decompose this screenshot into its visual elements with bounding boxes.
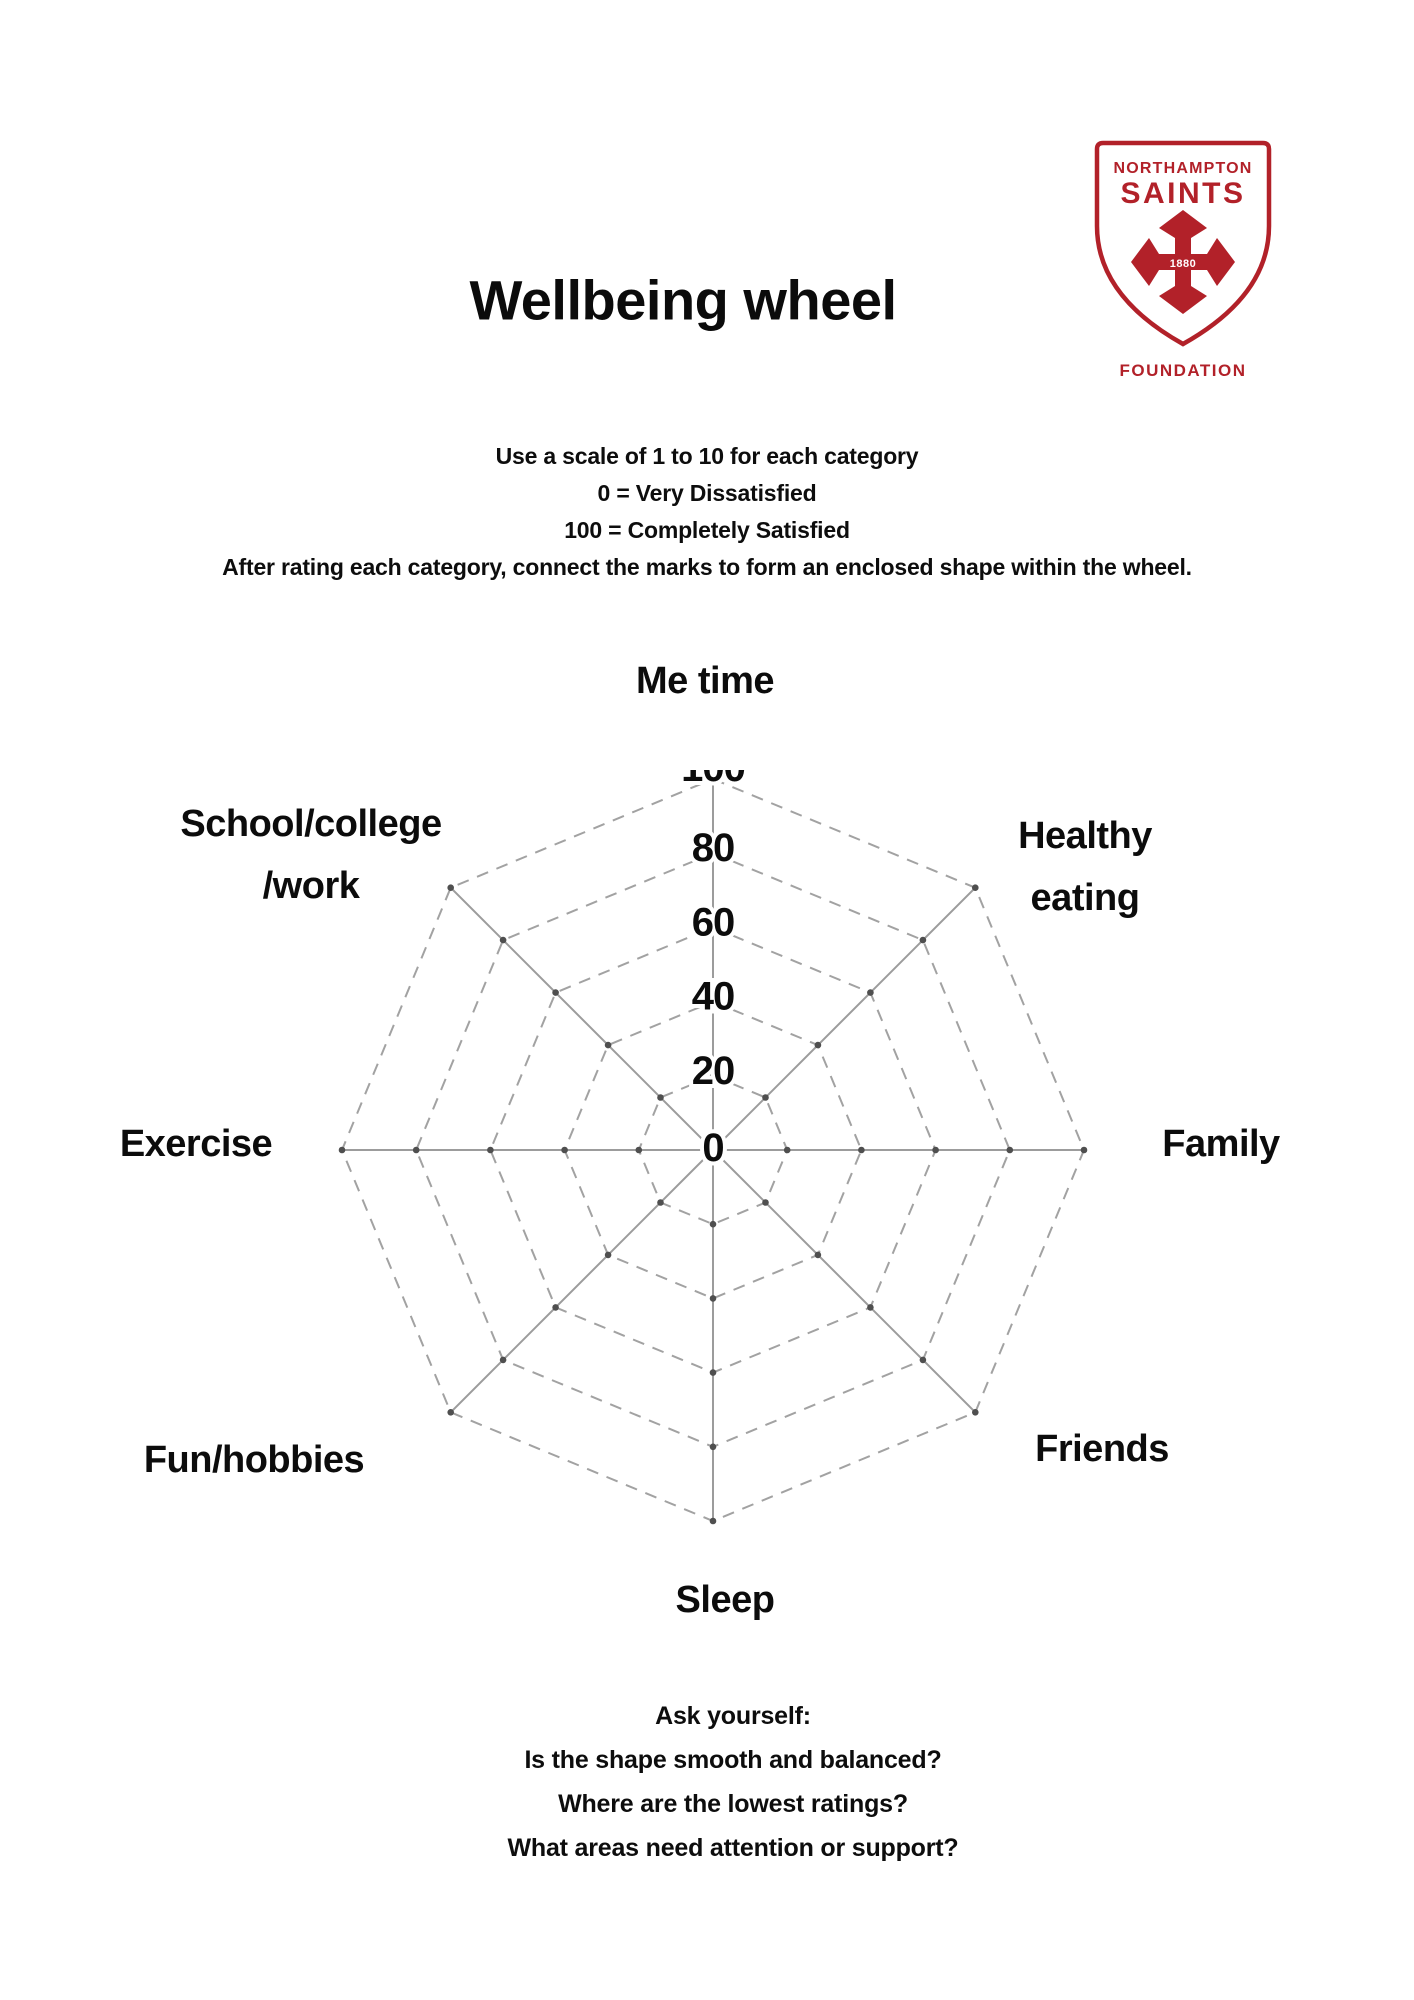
grid-dot xyxy=(487,1147,494,1154)
question-line: What areas need attention or support? xyxy=(243,1826,1223,1870)
category-label-sleep: Sleep xyxy=(676,1570,775,1632)
instructions: Use a scale of 1 to 10 for each category… xyxy=(132,438,1282,586)
grid-dot xyxy=(605,1252,612,1259)
instruction-line: Use a scale of 1 to 10 for each category xyxy=(132,438,1282,475)
instruction-line: After rating each category, connect the … xyxy=(132,549,1282,586)
tick-label: 100 xyxy=(681,770,745,790)
grid-dot xyxy=(710,1295,717,1302)
grid-dot xyxy=(972,1409,979,1416)
grid-dot xyxy=(500,937,507,944)
radar-spoke xyxy=(713,1150,975,1412)
grid-dot xyxy=(710,1444,717,1451)
logo-year: 1880 xyxy=(1170,258,1196,270)
grid-dot xyxy=(1081,1147,1088,1154)
worksheet-page: Wellbeing wheel NORTHAMPTON SAINTS 1880 … xyxy=(0,0,1414,2000)
grid-dot xyxy=(710,1369,717,1376)
logo-org-name: NORTHAMPTON xyxy=(1113,160,1252,177)
logo-brand-name: SAINTS xyxy=(1120,177,1245,210)
question-line: Where are the lowest ratings? xyxy=(243,1782,1223,1826)
page-title: Wellbeing wheel xyxy=(469,268,896,333)
category-label-healthy-eating: Healthy eating xyxy=(970,806,1200,930)
category-label-me-time: Me time xyxy=(636,651,774,713)
grid-dot xyxy=(636,1147,643,1154)
grid-dot xyxy=(710,1221,717,1228)
grid-dot xyxy=(561,1147,568,1154)
category-label-family: Family xyxy=(1162,1114,1279,1176)
grid-dot xyxy=(762,1199,769,1206)
grid-dot xyxy=(605,1042,612,1049)
grid-dot xyxy=(815,1042,822,1049)
grid-dot xyxy=(657,1094,664,1101)
tick-label: 40 xyxy=(692,975,735,1019)
grid-dot xyxy=(920,937,927,944)
foundation-logo: NORTHAMPTON SAINTS 1880 FOUNDATION xyxy=(1093,140,1273,390)
question-line: Is the shape smooth and balanced? xyxy=(243,1738,1223,1782)
grid-dot xyxy=(867,1304,874,1311)
grid-dot xyxy=(339,1147,346,1154)
instruction-line: 0 = Very Dissatisfied xyxy=(132,475,1282,512)
grid-dot xyxy=(858,1147,865,1154)
tick-label: 80 xyxy=(692,826,735,870)
grid-dot xyxy=(932,1147,939,1154)
grid-dot xyxy=(413,1147,420,1154)
grid-dot xyxy=(710,1518,717,1525)
tick-label: 60 xyxy=(692,900,735,944)
grid-dot xyxy=(552,989,559,996)
grid-dot xyxy=(784,1147,791,1154)
grid-dot xyxy=(500,1357,507,1364)
grid-dot xyxy=(920,1357,927,1364)
category-label-fun-hobbies: Fun/hobbies xyxy=(144,1430,364,1492)
grid-dot xyxy=(447,1409,454,1416)
grid-dot xyxy=(657,1199,664,1206)
questions: Ask yourself: Is the shape smooth and ba… xyxy=(243,1694,1223,1870)
grid-dot xyxy=(762,1094,769,1101)
grid-dot xyxy=(1007,1147,1014,1154)
question-heading: Ask yourself: xyxy=(243,1694,1223,1738)
category-label-friends: Friends xyxy=(1035,1419,1169,1481)
category-label-school-college-work: School/college /work xyxy=(146,794,476,918)
instruction-line: 100 = Completely Satisfied xyxy=(132,512,1282,549)
logo-foundation-label: FOUNDATION xyxy=(1119,361,1246,380)
grid-dot xyxy=(552,1304,559,1311)
category-label-exercise: Exercise xyxy=(120,1114,272,1176)
tick-label: 0 xyxy=(702,1126,723,1170)
grid-dot xyxy=(815,1252,822,1259)
tick-label: 20 xyxy=(692,1049,735,1093)
grid-dot xyxy=(867,989,874,996)
